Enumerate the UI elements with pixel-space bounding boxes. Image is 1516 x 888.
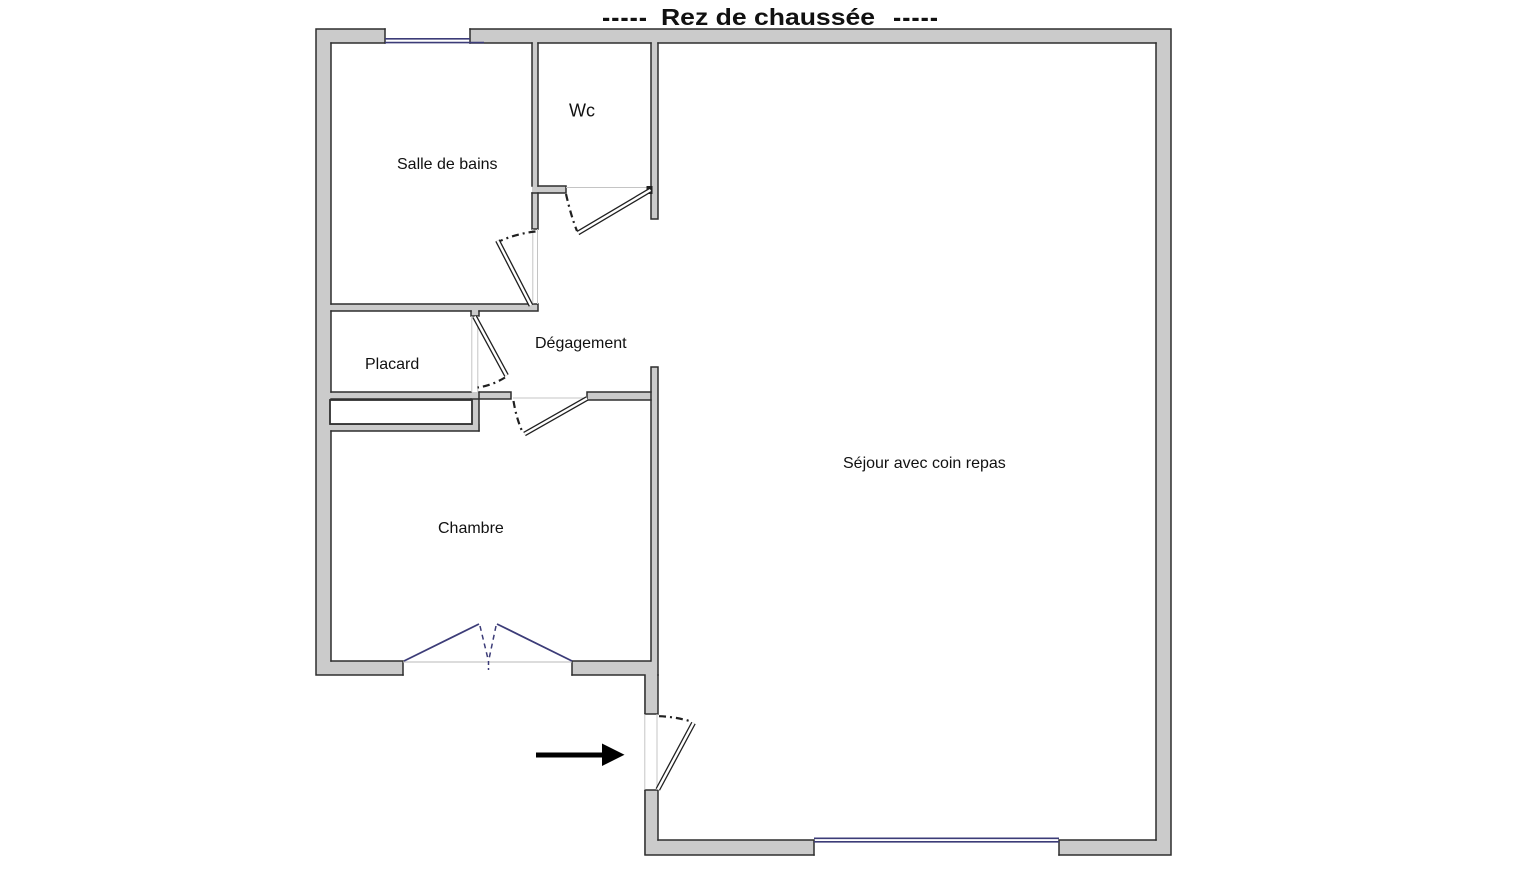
svg-text:Dégagement: Dégagement bbox=[535, 335, 627, 352]
svg-text:Rez de chaussée: Rez de chaussée bbox=[661, 4, 875, 30]
svg-text:Chambre: Chambre bbox=[438, 520, 504, 537]
svg-text:Salle de bains: Salle de bains bbox=[397, 156, 498, 173]
svg-text:Séjour avec coin repas: Séjour avec coin repas bbox=[843, 455, 1006, 472]
svg-text:Placard: Placard bbox=[365, 356, 419, 373]
svg-text:Wc: Wc bbox=[569, 101, 595, 121]
